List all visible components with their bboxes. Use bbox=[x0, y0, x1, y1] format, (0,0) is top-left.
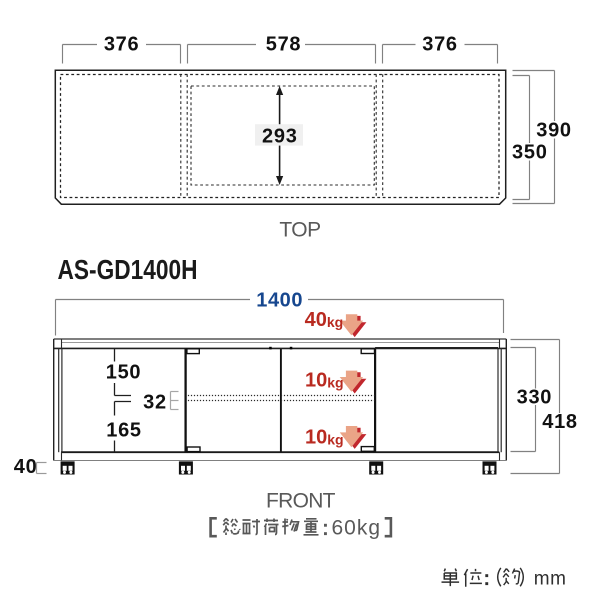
svg-text:1400: 1400 bbox=[256, 289, 303, 311]
svg-text:60kg: 60kg bbox=[332, 516, 382, 539]
svg-text:578: 578 bbox=[266, 34, 301, 56]
svg-text:376: 376 bbox=[422, 34, 457, 56]
svg-text:TOP: TOP bbox=[279, 219, 320, 242]
svg-text:150: 150 bbox=[106, 362, 141, 384]
svg-text:293: 293 bbox=[262, 125, 297, 147]
svg-text:32: 32 bbox=[143, 391, 167, 413]
svg-text:418: 418 bbox=[542, 411, 577, 433]
svg-text:AS-GD1400H: AS-GD1400H bbox=[58, 254, 198, 285]
svg-text:376: 376 bbox=[104, 34, 139, 56]
svg-text:350: 350 bbox=[512, 142, 547, 164]
svg-text:40: 40 bbox=[14, 456, 38, 478]
svg-text:165: 165 bbox=[106, 420, 141, 442]
svg-text:mm: mm bbox=[534, 569, 567, 590]
svg-text:390: 390 bbox=[536, 120, 571, 142]
svg-text:330: 330 bbox=[517, 386, 552, 408]
svg-text:FRONT: FRONT bbox=[266, 490, 336, 513]
